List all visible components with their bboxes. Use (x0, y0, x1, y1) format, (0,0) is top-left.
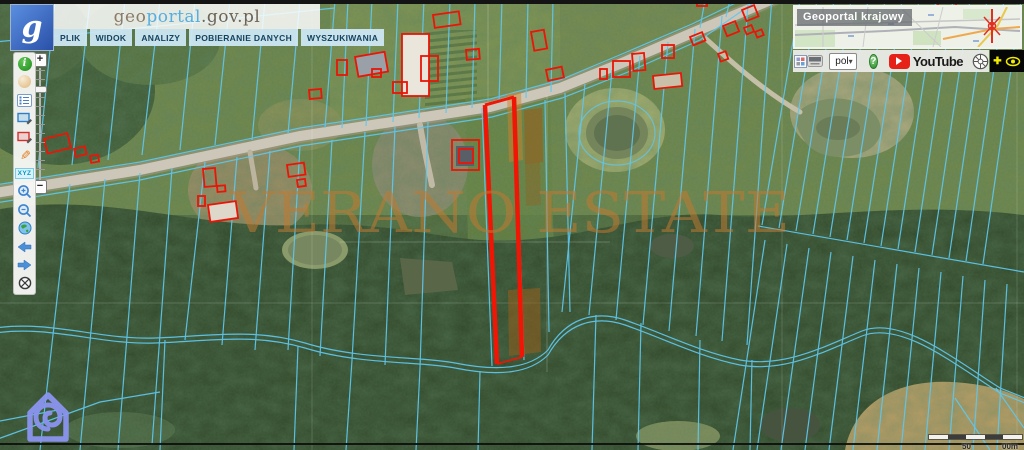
full-extent-button[interactable] (15, 220, 34, 237)
verano-estate-logo (14, 383, 72, 450)
chevron-down-icon: ▾ (849, 57, 856, 66)
contrast-panel: ✚ (990, 50, 1024, 72)
legend-button[interactable] (793, 55, 807, 68)
next-view-button[interactable] (15, 257, 34, 274)
scale-bar (928, 434, 1023, 440)
globe-icon (18, 221, 32, 235)
crosshair-icon (18, 276, 32, 290)
geoportal-app: VERANO ESTATE g geoportal.gov.pl PLIK WI… (0, 0, 1024, 450)
draw-rectangle-blue-icon (17, 111, 33, 125)
pencil-icon: ✎ (17, 150, 33, 161)
zoom-in-button[interactable] (15, 183, 34, 200)
draw-area-red-button[interactable] (15, 128, 34, 145)
contrast-eye-button[interactable] (1005, 56, 1021, 67)
menu-item-plik[interactable]: PLIK (54, 29, 87, 46)
brand-geo: geo (114, 7, 147, 27)
brand-portal: portal (146, 7, 201, 27)
menu-item-analizy[interactable]: ANALIZY (135, 29, 186, 46)
watermark-text: VERANO ESTATE (229, 181, 790, 246)
sphere-button[interactable] (15, 73, 34, 90)
minimap-title: Geoportal krajowy (797, 9, 912, 26)
info-button[interactable]: i (15, 55, 34, 72)
mobile-app-button[interactable] (807, 55, 823, 67)
language-value: pol (830, 56, 848, 67)
menu-item-widok[interactable]: WIDOK (90, 29, 133, 46)
xyz-icon: XYZ (15, 168, 35, 179)
help-icon: ? (870, 56, 876, 67)
accessibility-wheel-icon (972, 53, 989, 70)
draw-pencil-button[interactable]: ✎ (15, 147, 34, 164)
logo-letter: g (22, 13, 43, 43)
youtube-label: YouTube (913, 54, 963, 69)
mobile-device-icon (807, 55, 823, 67)
geoportal-logo[interactable]: g (10, 4, 54, 51)
scale-end-label: 00m (1002, 442, 1018, 450)
attributes-form-button[interactable] (15, 92, 34, 109)
scale-mid-label: 50 (962, 442, 971, 450)
main-menu: PLIK WIDOK ANALIZY POBIERANIE DANYCH WYS… (54, 29, 384, 46)
accessibility-button[interactable] (972, 53, 989, 70)
forward-arrow-icon (17, 259, 32, 271)
site-title: geoportal.gov.pl (54, 4, 320, 29)
contrast-increase-button[interactable]: ✚ (993, 56, 1001, 67)
house-spiral-icon (14, 383, 72, 445)
center-view-button[interactable] (15, 275, 34, 292)
zoom-out-button[interactable] (15, 202, 34, 219)
zoom-out-icon (17, 203, 32, 218)
zoom-in-icon (17, 184, 32, 199)
left-toolbar: i ✎ XYZ (13, 52, 36, 295)
menu-item-pobieranie-danych[interactable]: POBIERANIE DANYCH (189, 29, 298, 46)
menu-item-wyszukiwania[interactable]: WYSZUKIWANIA (301, 29, 384, 46)
back-arrow-icon (17, 241, 32, 253)
info-icon: i (18, 57, 32, 71)
youtube-play-icon (889, 54, 910, 69)
sphere-icon (18, 75, 31, 88)
xyz-coordinates-button[interactable]: XYZ (15, 165, 34, 182)
youtube-link[interactable]: YouTube (889, 54, 963, 69)
minimap[interactable]: Geoportal krajowy (793, 5, 1022, 49)
top-right-toolbar: pol ▾ ? YouTube (793, 50, 989, 72)
previous-view-button[interactable] (15, 238, 34, 255)
draw-area-blue-button[interactable] (15, 110, 34, 127)
form-icon (17, 94, 32, 107)
brand-suffix: .gov.pl (201, 7, 260, 27)
language-select[interactable]: pol ▾ (829, 53, 856, 70)
legend-grid-icon (794, 55, 807, 68)
bottom-border (0, 443, 1024, 445)
draw-rectangle-red-icon (17, 130, 33, 144)
help-button[interactable]: ? (869, 54, 878, 69)
